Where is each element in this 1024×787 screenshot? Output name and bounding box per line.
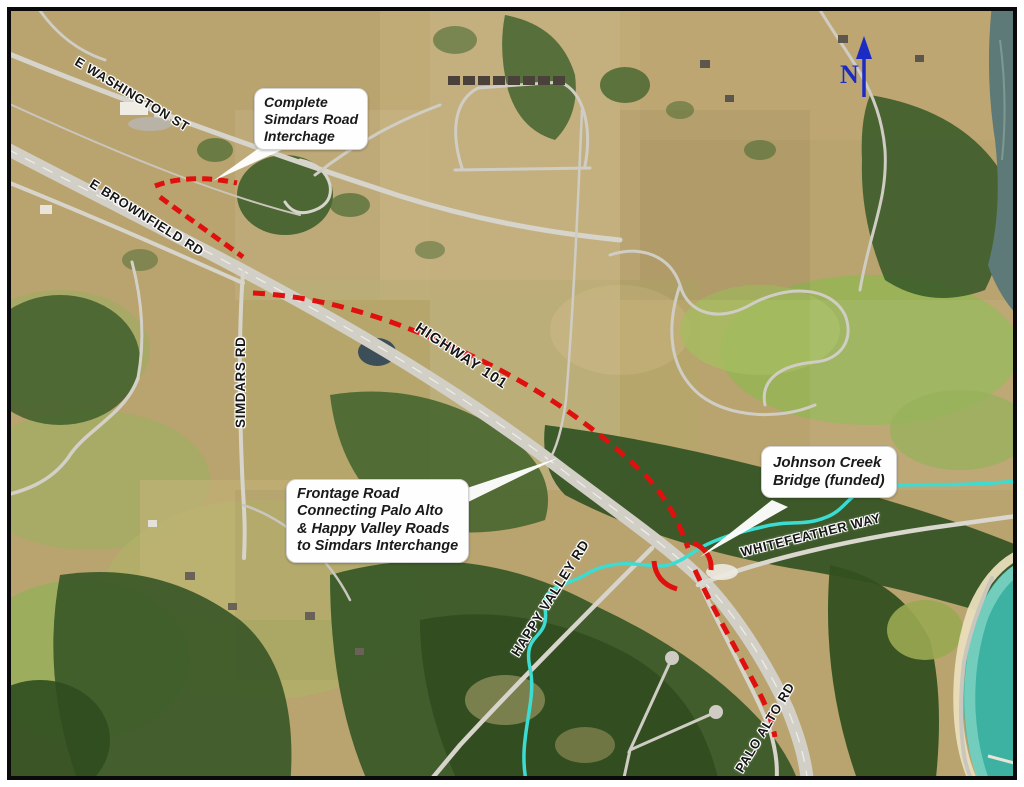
road-label-simdars-rd: SIMDARS RD [233,336,248,428]
callout-johnson-creek-bridge: Johnson Creek Bridge (funded) [761,446,897,498]
aerial-imagery [7,7,1017,780]
aerial-map: E WASHINGTON ST E BROWNFIELD RD SIMDARS … [7,7,1017,780]
callout-simdars-interchange: Complete Simdars Road Interchage [254,88,368,150]
aerial-photo: E WASHINGTON ST E BROWNFIELD RD SIMDARS … [7,7,1017,780]
callout-frontage-road: Frontage Road Connecting Palo Alto & Hap… [286,479,469,563]
north-arrow-label: N [840,60,859,90]
map-page: E WASHINGTON ST E BROWNFIELD RD SIMDARS … [0,0,1024,787]
